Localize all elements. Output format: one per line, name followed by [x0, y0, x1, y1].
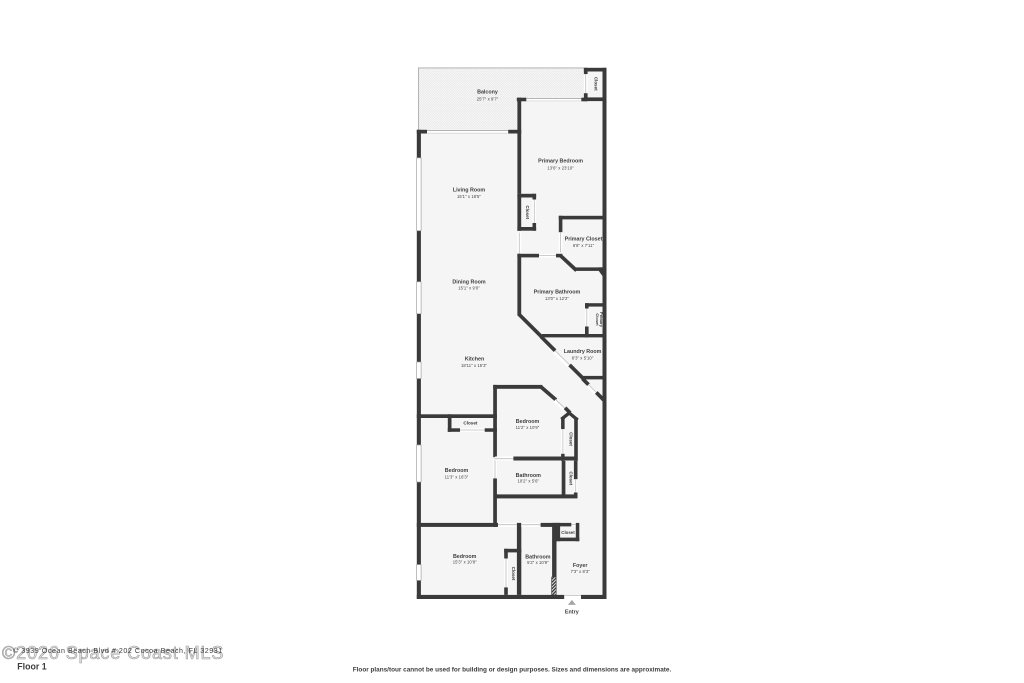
svg-text:Laundry Room: Laundry Room — [564, 349, 602, 355]
svg-text:13'0" x 12'2": 13'0" x 12'2" — [545, 296, 569, 301]
svg-text:Balcony: Balcony — [477, 90, 498, 96]
svg-text:Primary Bathroom: Primary Bathroom — [534, 290, 581, 296]
svg-text:15'3" x 10'8": 15'3" x 10'8" — [453, 560, 477, 565]
svg-text:25'7" x 9'7": 25'7" x 9'7" — [477, 97, 499, 102]
svg-text:Bedroom: Bedroom — [445, 468, 469, 474]
svg-text:Closet: Closet — [511, 567, 516, 581]
svg-text:7'3" x 8'3": 7'3" x 8'3" — [571, 569, 591, 574]
svg-text:Closet: Closet — [569, 432, 574, 446]
svg-text:11'2" x 10'9": 11'2" x 10'9" — [516, 425, 540, 430]
svg-text:Closet: Closet — [594, 77, 599, 91]
svg-text:15'1" x 9'0": 15'1" x 9'0" — [458, 286, 480, 291]
svg-text:Closet: Closet — [561, 530, 575, 535]
svg-text:Primary Closet: Primary Closet — [565, 236, 603, 242]
svg-text:Closet: Closet — [525, 205, 530, 219]
svg-text:Living Room: Living Room — [453, 188, 486, 194]
svg-text:© 3939 Ocean Beach Blvd # 202: © 3939 Ocean Beach Blvd # 202 Cocoa Beac… — [13, 647, 223, 655]
svg-text:10'2" x 5'6": 10'2" x 5'6" — [517, 479, 539, 484]
svg-text:Floor 1: Floor 1 — [17, 661, 46, 671]
svg-text:11'3" x 16'3": 11'3" x 16'3" — [445, 474, 469, 479]
svg-text:8'3" x 5'10": 8'3" x 5'10" — [572, 356, 594, 361]
svg-text:18'11" x 15'3": 18'11" x 15'3" — [461, 363, 488, 368]
svg-text:Closet: Closet — [463, 420, 478, 425]
svg-text:Kitchen: Kitchen — [465, 356, 485, 362]
svg-text:Bedroom: Bedroom — [516, 419, 540, 425]
svg-text:5'2" x 10'9": 5'2" x 10'9" — [527, 560, 549, 565]
svg-text:Closet: Closet — [568, 471, 573, 485]
svg-text:13'6" x 23'10": 13'6" x 23'10" — [547, 165, 574, 170]
svg-text:Dining Room: Dining Room — [452, 279, 485, 285]
svg-text:Floor plans/tour cannot be use: Floor plans/tour cannot be used for buil… — [353, 666, 672, 673]
svg-text:Closet: Closet — [595, 313, 600, 326]
svg-text:6'8" x 7'11": 6'8" x 7'11" — [573, 243, 595, 248]
svg-text:Primary Bedroom: Primary Bedroom — [538, 159, 583, 165]
svg-text:15'1" x 18'5": 15'1" x 18'5" — [457, 194, 481, 199]
svg-text:Entry: Entry — [565, 610, 579, 616]
